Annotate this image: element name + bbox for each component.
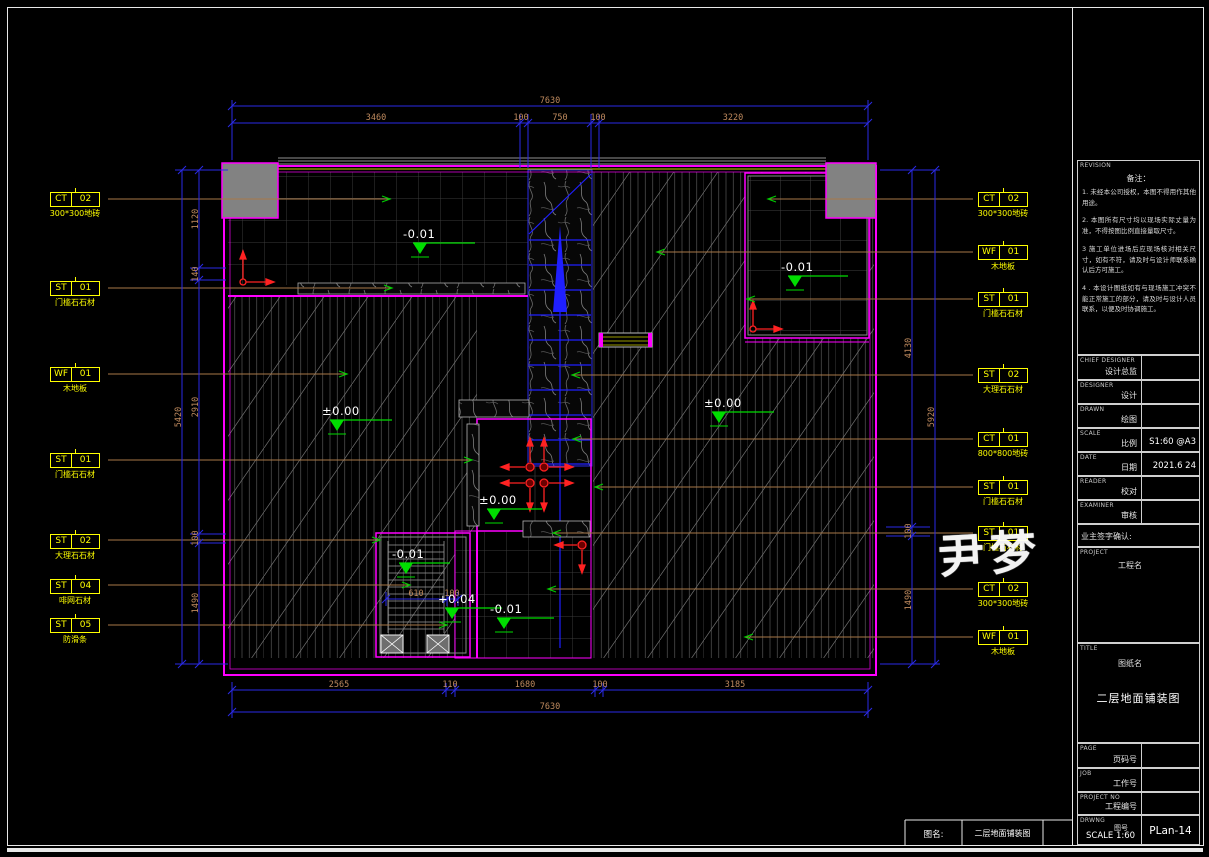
svg-text:±0.00: ±0.00 [479, 493, 517, 507]
revision-box: REVISION 备注： 1. 未经本公司授权，本图不得用作其他用途。 2. 本… [1077, 160, 1200, 355]
svg-text:100: 100 [191, 530, 201, 545]
title-block-panel: REVISION 备注： 1. 未经本公司授权，本图不得用作其他用途。 2. 本… [1072, 7, 1204, 845]
svg-text:110: 110 [442, 680, 457, 690]
callout-left-st02: ST02 大理石石材 [40, 534, 110, 561]
callout-left-st01a: ST01 门槛石石材 [40, 281, 110, 308]
svg-text:-0.01: -0.01 [392, 547, 424, 561]
notes-title: 备注： [1078, 173, 1199, 184]
svg-text:-0.01: -0.01 [781, 260, 813, 274]
drawing-number: PLan-14 [1142, 825, 1199, 837]
callout-left-st05: ST05 防滑条 [40, 618, 110, 645]
svg-text:1490: 1490 [191, 593, 201, 613]
doorsill-right-room [599, 333, 652, 347]
row-job: JOB工作号 [1077, 768, 1200, 792]
revision-label: REVISION [1080, 162, 1111, 169]
svg-text:610: 610 [408, 589, 423, 599]
svg-text:5920: 5920 [927, 407, 937, 427]
svg-text:7630: 7630 [540, 96, 560, 106]
callout-left-st01b: ST01 门槛石石材 [40, 453, 110, 480]
svg-text:1680: 1680 [515, 680, 535, 690]
row-examiner: EXAMINER审核 [1077, 500, 1200, 524]
bottom-bar-drawing-name: 二层地面铺装图 [962, 828, 1043, 839]
svg-text:1490: 1490 [904, 590, 914, 610]
callout-right-ct02b: CT02 300*300地砖 [968, 582, 1038, 609]
svg-text:3185: 3185 [725, 680, 745, 690]
row-project-no: PROJECT NO工程编号 [1077, 792, 1200, 815]
owner-signature-row: 业主签字确认: [1077, 524, 1200, 547]
svg-text:100: 100 [592, 680, 607, 690]
callout-left-ct02: CT02 300*300地砖 [40, 192, 110, 219]
svg-text:-0.01: -0.01 [490, 602, 522, 616]
callout-right-st01a: ST01 门槛石石材 [968, 292, 1038, 319]
floor-plan-canvas: 610 100 [0, 0, 1209, 857]
svg-text:100: 100 [590, 113, 605, 123]
callout-right-ct02a: CT02 300*300地砖 [968, 192, 1038, 219]
svg-text:750: 750 [552, 113, 567, 123]
svg-text:100: 100 [513, 113, 528, 123]
svg-text:3460: 3460 [366, 113, 386, 123]
row-designer: DESIGNER设计 [1077, 380, 1200, 404]
svg-text:100: 100 [904, 523, 914, 538]
bottom-bar-label: 图名: [905, 828, 962, 840]
callout-right-wf01b: WF01 木地板 [968, 630, 1038, 657]
svg-text:1120: 1120 [191, 209, 201, 229]
svg-text:7630: 7630 [540, 702, 560, 712]
svg-text:-0.01: -0.01 [403, 227, 435, 241]
drawing-title: 二层地面铺装图 [1078, 690, 1199, 706]
callout-right-wf01a: WF01 木地板 [968, 245, 1038, 272]
svg-text:+0.04: +0.04 [438, 592, 476, 606]
row-page: PAGE页码号 [1077, 743, 1200, 768]
row-chief-designer: CHIEF DESIGNER设计总监 [1077, 355, 1200, 380]
svg-text:2910: 2910 [191, 397, 201, 417]
callout-right-st02: ST02 大理石石材 [968, 368, 1038, 395]
svg-text:140: 140 [191, 266, 201, 281]
callout-right-ct01: CT01 800*800地砖 [968, 432, 1038, 459]
svg-text:±0.00: ±0.00 [704, 396, 742, 410]
svg-text:5420: 5420 [174, 407, 184, 427]
row-date: DATE日期 2021.6 24 [1077, 452, 1200, 476]
notes-text: 1. 未经本公司授权，本图不得用作其他用途。 2. 本图所有尺寸均以现场实际丈量… [1082, 187, 1196, 322]
top-window-band [278, 158, 826, 169]
svg-text:4130: 4130 [904, 338, 914, 358]
row-drawn: DRAWN绘图 [1077, 404, 1200, 428]
row-scale: SCALE比例 S1:60 @A3 [1077, 428, 1200, 452]
cad-sheet: 610 100 [0, 0, 1209, 857]
watermark-signature: 尹梦 [936, 515, 1043, 586]
callout-right-st01b: ST01 门槛石石材 [968, 480, 1038, 507]
svg-text:2565: 2565 [329, 680, 349, 690]
row-drawing-no: DRWNG 图号 SCALE 1:60 PLan-14 [1077, 815, 1200, 845]
svg-text:3220: 3220 [723, 113, 743, 123]
callout-left-wf01: WF01 木地板 [40, 367, 110, 394]
project-box: PROJECT 工程名 [1077, 547, 1200, 643]
callout-left-st04: ST04 啡网石材 [40, 579, 110, 606]
title-box: TITLE 图纸名 二层地面铺装图 [1077, 643, 1200, 743]
svg-text:±0.00: ±0.00 [322, 404, 360, 418]
row-reader: READER校对 [1077, 476, 1200, 500]
